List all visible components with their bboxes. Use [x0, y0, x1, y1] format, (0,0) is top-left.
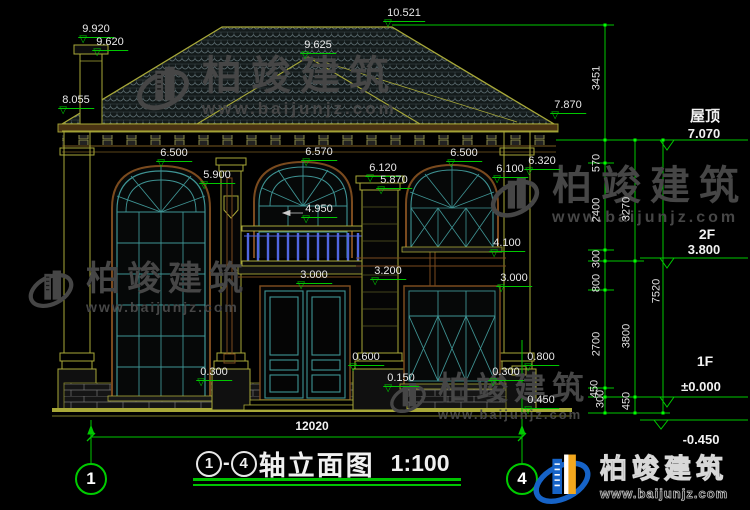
brand-logo-icon [134, 58, 192, 116]
watermark-url: www.baijunjz.com [202, 100, 398, 117]
brand-logo-icon [26, 263, 76, 313]
watermark-url: www.baijunjz.com [552, 210, 748, 226]
axis-bubble-1-small: 1 [196, 451, 222, 477]
watermark-brand: 柏竣建筑 [438, 372, 590, 404]
watermark-url: www.baijunjz.com [438, 408, 590, 421]
watermark-brand: 柏竣建筑 [86, 262, 250, 296]
brand-logo-icon [388, 377, 428, 417]
watermark: 柏竣建筑 www.baijunjz.com [488, 166, 748, 226]
watermark: 柏竣建筑 www.baijunjz.com [388, 372, 590, 421]
brand-logo-icon [530, 446, 594, 510]
drawing-scale: 1:100 [391, 450, 450, 477]
watermark: 柏竣建筑 www.baijunjz.com [134, 56, 398, 117]
axis-bubble-1: 1 [75, 463, 107, 495]
brand-logo-url: www.baijunjz.com [600, 487, 728, 500]
title-underline [193, 484, 461, 486]
brand-logo-icon [488, 169, 542, 223]
brand-logo: 柏竣建筑 www.baijunjz.com [530, 446, 728, 510]
entrance-door [244, 286, 366, 410]
watermark-brand: 柏竣建筑 [202, 56, 398, 96]
cad-elevation-viewport: 柏竣建筑 www.baijunjz.com 柏竣建筑 www.baijunjz.… [0, 0, 750, 510]
axis-bubble-4-small: 4 [231, 451, 257, 477]
axis-number: 4 [517, 469, 526, 489]
watermark: 柏竣建筑 www.baijunjz.com [26, 262, 250, 314]
axis-number: 1 [86, 469, 95, 489]
title-underline [193, 478, 461, 481]
axis-range-dash: - [223, 452, 230, 475]
watermark-brand: 柏竣建筑 [552, 166, 748, 206]
brand-logo-text: 柏竣建筑 [600, 456, 728, 483]
watermark-url: www.baijunjz.com [86, 300, 250, 314]
